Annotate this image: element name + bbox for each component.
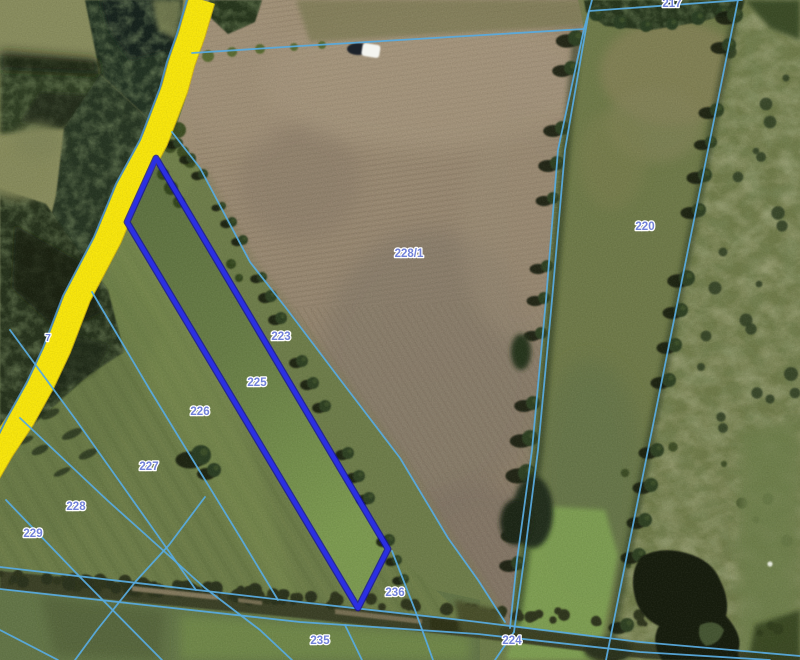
svg-text:224: 224 — [502, 635, 522, 647]
svg-text:226: 226 — [190, 406, 209, 418]
svg-text:235: 235 — [310, 635, 330, 647]
svg-text:228/1: 228/1 — [395, 248, 424, 260]
svg-text:220: 220 — [635, 221, 654, 233]
svg-text:227: 227 — [139, 461, 158, 473]
svg-text:223: 223 — [271, 331, 290, 343]
svg-text:229: 229 — [23, 528, 42, 540]
svg-text:217: 217 — [662, 0, 681, 10]
svg-text:7: 7 — [45, 333, 51, 344]
svg-text:228: 228 — [66, 501, 86, 513]
svg-text:225: 225 — [247, 377, 267, 389]
svg-text:236: 236 — [385, 587, 404, 599]
